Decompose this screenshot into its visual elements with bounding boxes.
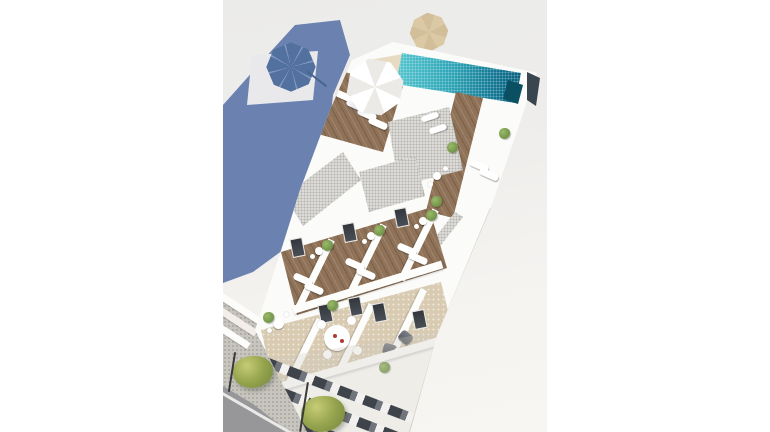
- render-canvas: [0, 0, 770, 432]
- sun-lounger: [478, 167, 499, 182]
- table-decor: [333, 334, 337, 338]
- bistro-chair: [284, 312, 289, 317]
- photo: [223, 0, 547, 432]
- terrace-door: [341, 222, 357, 243]
- potted-plant: [499, 128, 510, 139]
- potted-plant: [327, 300, 338, 311]
- bistro-chair: [267, 328, 272, 333]
- gravel-roof-block: [359, 156, 425, 212]
- bistro-chair: [414, 224, 419, 229]
- bistro-table: [273, 318, 284, 329]
- bistro-chair: [310, 254, 315, 259]
- table-decor: [340, 339, 344, 343]
- terrace-door: [393, 207, 409, 228]
- terrace-door: [289, 237, 305, 258]
- terrace-door: [347, 296, 363, 317]
- bistro-table: [433, 172, 441, 180]
- potted-plant: [426, 210, 437, 221]
- dining-chair: [317, 320, 326, 329]
- bistro-chair: [443, 166, 448, 171]
- dining-chair: [347, 316, 356, 325]
- bistro-chair: [428, 182, 433, 187]
- pool-outer-edge: [527, 70, 540, 106]
- bistro-chair: [362, 239, 367, 244]
